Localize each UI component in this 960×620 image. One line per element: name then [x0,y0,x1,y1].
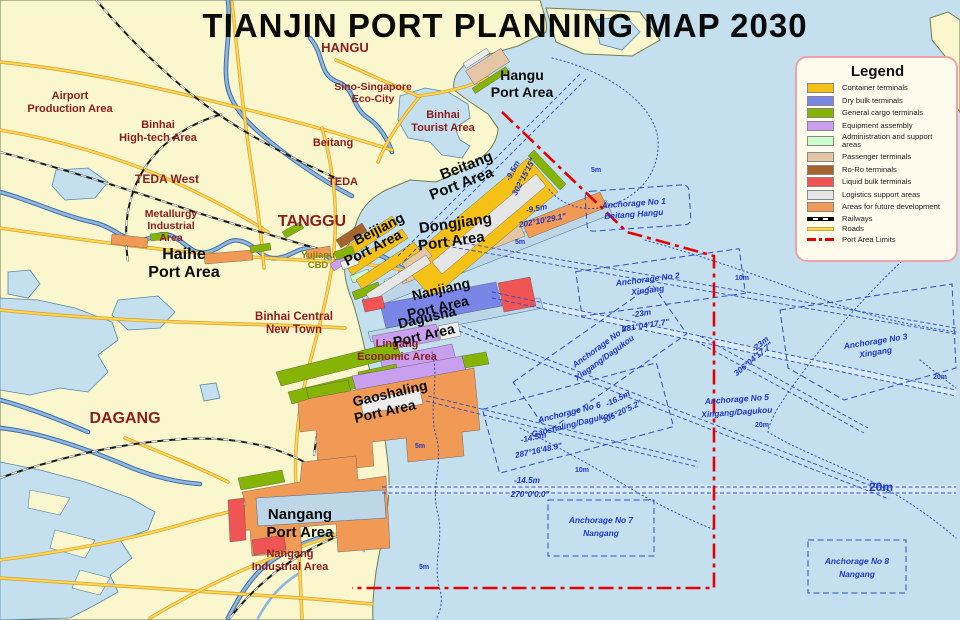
label-anchorage-8b: Nangang [839,569,875,579]
label-nangang-port-1: Nangang [268,506,332,523]
legend-item: General cargo terminals [807,108,948,118]
label-nangang-port-2: Port Area [267,524,335,541]
label-metallurgy-1: Metallurgy [145,208,198,220]
passenger-swatch [807,152,834,162]
label-tanggu: TANGGU [278,213,346,230]
label-anchorage-8a: Anchorage No 8 [824,556,890,566]
label-contour-5m-b: 5m [515,239,525,246]
label-anchorage-7a: Anchorage No 7 [568,515,634,525]
logistics-swatch [807,190,834,200]
port-limit-line [807,238,834,241]
label-airport-2: Production Area [27,103,113,115]
label-yujiapu-2: CBD [308,260,329,271]
legend-label: Railways [842,215,948,223]
map-stage: TIANJIN PORT PLANNING MAP 2030 HANGU Air… [0,0,960,620]
general-cargo-swatch [807,108,834,118]
label-nangang-ind-1: Nangang [266,548,313,560]
label-hangu-port-2: Port Area [491,84,554,100]
legend-item: Dry bulk terminals [807,96,948,106]
label-tourist-1: Binhai [426,109,460,121]
label-haihe-port-2: Port Area [148,264,220,281]
label-contour-20m-b: 20m [933,374,947,381]
label-metallurgy-3: Area [159,232,183,244]
label-teda-west: TEDA West [135,172,199,186]
legend-title: Legend [807,63,948,80]
label-lingang-2: Economic Area [357,351,438,363]
legend-label: Container terminals [842,84,948,92]
label-airport-1: Airport [52,90,89,102]
legend-item: Liquid bulk terminals [807,177,948,187]
label-contour-20m-a: 20m [755,422,769,429]
legend-label: Logistics support areas [842,191,948,199]
legend-label: Port Area Limits [842,236,948,244]
label-sino-2: Eco-City [352,93,395,105]
label-hangu: HANGU [321,40,369,55]
equipment-swatch [807,121,834,131]
legend-item: Port Area Limits [807,236,948,244]
legend-item: Passenger terminals [807,152,948,162]
legend-item: Areas for future development [807,202,948,212]
legend-label: Administration and support areas [842,133,948,149]
legend-label: Areas for future development [842,203,948,211]
administration-swatch [807,136,834,146]
legend-label: Equipment assembly [842,122,948,130]
label-teda: TEDA [328,176,358,188]
label-nangang-channel-depth: -14.5m [514,476,540,485]
legend-label: General cargo terminals [842,109,948,117]
legend-item: Ro-Ro terminals [807,165,948,175]
legend-item: Railways [807,215,948,223]
legend-label: Liquid bulk terminals [842,178,948,186]
label-contour-20m-big: 20m [869,480,893,494]
legend-label: Ro-Ro terminals [842,166,948,174]
page-title: TIANJIN PORT PLANNING MAP 2030 [202,7,807,44]
label-central-1: Binhai Central [255,311,333,323]
label-tourist-2: Tourist Area [411,122,475,134]
label-hitech-2: High-tech Area [119,132,198,144]
label-central-2: New Town [266,324,322,336]
label-contour-10m-a: 10m [735,275,749,282]
legend-label: Passenger terminals [842,153,948,161]
legend-item: Roads [807,225,948,233]
legend-items: Container terminalsDry bulk terminalsGen… [807,83,948,244]
legend-label: Roads [842,225,948,233]
railway-line [807,217,834,221]
label-dagang: DAGANG [89,410,160,427]
label-nangang-ind-2: Industrial Area [252,561,329,573]
label-anchorage-7b: Nangang [583,528,619,538]
legend-item: Equipment assembly [807,121,948,131]
label-contour-5m-a: 5m [591,167,601,174]
legend-item: Administration and support areas [807,133,948,149]
label-hitech-1: Binhai [141,119,175,131]
container-swatch [807,83,834,93]
label-beitang-town: Beitang [313,137,353,149]
label-nangang-channel-bearing: 270°0'0.0" [510,490,550,499]
dry-bulk-swatch [807,96,834,106]
road-line [807,227,834,231]
label-contour-5m-d: 5m [419,564,429,571]
label-sino-1: Sino-Singapore [334,81,412,93]
label-contour-10m-b: 10m [575,467,589,474]
liquid-bulk-swatch [807,177,834,187]
legend-panel: Legend Container terminalsDry bulk termi… [795,56,958,262]
label-metallurgy-2: Industrial [147,220,194,232]
legend-label: Dry bulk terminals [842,97,948,105]
roro-swatch [807,165,834,175]
legend-item: Container terminals [807,83,948,93]
label-contour-5m-c: 5m [415,443,425,450]
legend-item: Logistics support areas [807,190,948,200]
label-haihe-port-1: Haihe [162,246,206,263]
future-development-swatch [807,202,834,212]
label-hangu-port-1: Hangu [500,67,544,83]
